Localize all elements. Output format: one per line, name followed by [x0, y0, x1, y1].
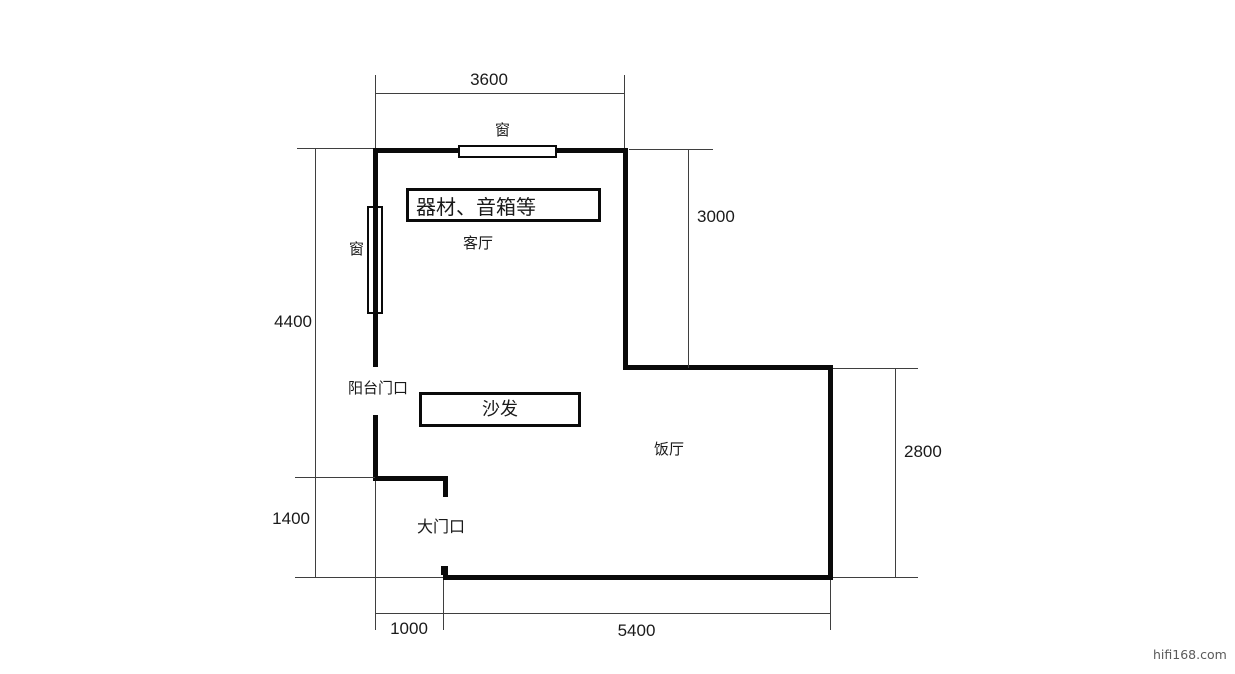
wall-entry-stub-lower: [441, 566, 448, 575]
ext-line-right-bottom: [833, 577, 918, 578]
ext-line-left-bottom: [295, 577, 443, 578]
dim-label-left-height: 4400: [256, 313, 312, 332]
balcony-doorway-label: 阳台门口: [348, 380, 408, 397]
window-top: [458, 145, 557, 158]
living-room-label: 客厅: [463, 235, 493, 252]
dim-line-bottom: [375, 613, 831, 614]
dim-label-dining-depth: 2800: [904, 443, 942, 462]
dim-label-bottom-width: 5400: [443, 622, 830, 641]
dim-label-living-depth: 3000: [697, 208, 735, 227]
wall-entry-stub-upper: [443, 476, 448, 497]
window-left: [367, 206, 383, 314]
ext-line-right-mid: [833, 368, 918, 369]
ext-line-bottom-x375: [375, 481, 376, 630]
dim-line-left: [315, 148, 316, 578]
dim-label-entry-width: 1000: [365, 620, 453, 639]
equipment-box: 器材、音箱等: [406, 188, 601, 222]
sofa-box: 沙发: [419, 392, 581, 427]
ext-line-top-right: [624, 75, 625, 148]
dim-line-2800: [895, 368, 896, 578]
sofa-label: 沙发: [482, 400, 518, 420]
ext-line-left-mid: [295, 477, 375, 478]
dim-line-3000: [688, 149, 689, 368]
equipment-label: 器材、音箱等: [409, 192, 536, 218]
window-top-label: 窗: [495, 122, 510, 139]
ext-line-right-upper: [629, 149, 713, 150]
ext-line-left-top: [297, 148, 373, 149]
wall-entry-top: [373, 476, 448, 481]
floor-plan-canvas: 3600 4400 1400 3000 2800 1000 5400 窗 窗 客…: [0, 0, 1235, 674]
dim-label-entry-height: 1400: [254, 510, 310, 529]
dim-line-top: [375, 93, 625, 94]
ext-line-top-left: [375, 75, 376, 148]
wall-bottom: [443, 575, 833, 580]
wall-right: [828, 365, 833, 580]
dim-label-top-width: 3600: [414, 71, 564, 90]
wall-middle-horizontal: [623, 365, 833, 370]
ext-line-bottom-x830: [830, 580, 831, 630]
wall-living-right: [623, 148, 628, 370]
main-entrance-label: 大门口: [417, 518, 465, 536]
dining-room-label: 饭厅: [654, 441, 684, 458]
window-left-label: 窗: [349, 241, 364, 258]
wall-left-lower: [373, 415, 378, 481]
watermark-text: hifi168.com: [1153, 647, 1227, 662]
